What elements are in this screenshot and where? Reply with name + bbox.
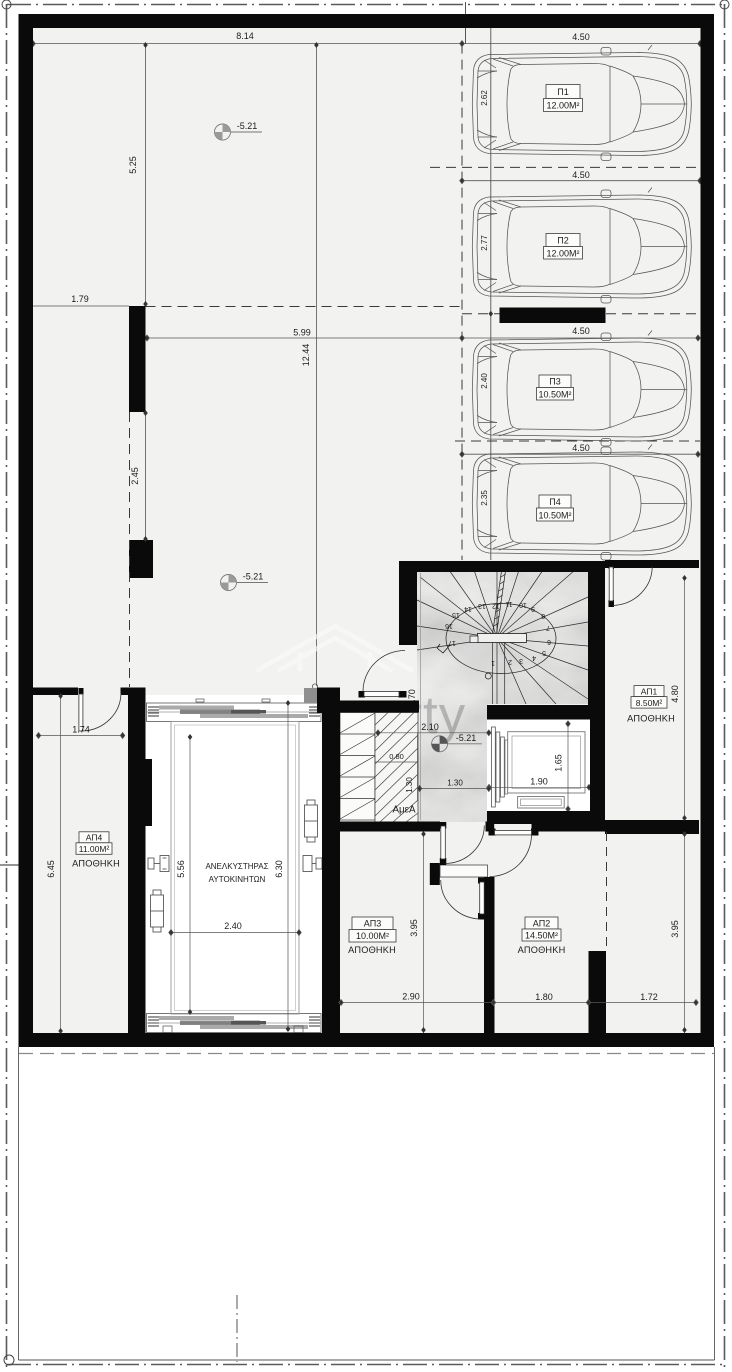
svg-text:ΑμεΑ: ΑμεΑ — [392, 805, 416, 816]
svg-text:4.50: 4.50 — [572, 32, 590, 42]
svg-text:7: 7 — [546, 624, 550, 631]
svg-text:4: 4 — [532, 654, 536, 661]
svg-text:1.90: 1.90 — [530, 777, 548, 787]
svg-text:Π2: Π2 — [557, 236, 569, 246]
svg-text:ΑΝΕΛΚΥΣΤΗΡΑΣ: ΑΝΕΛΚΥΣΤΗΡΑΣ — [205, 862, 268, 871]
svg-text:12.44: 12.44 — [301, 344, 311, 367]
svg-text:1.30: 1.30 — [447, 779, 463, 788]
svg-text:14.50Μ²: 14.50Μ² — [525, 931, 558, 941]
svg-text:4.80: 4.80 — [670, 685, 680, 703]
svg-text:6.45: 6.45 — [46, 860, 56, 878]
svg-text:16: 16 — [445, 622, 453, 629]
svg-text:ΑΠΟΘΗΚΗ: ΑΠΟΘΗΚΗ — [72, 859, 120, 869]
svg-text:4.50: 4.50 — [572, 326, 590, 336]
svg-text:0.80: 0.80 — [389, 752, 404, 761]
svg-text:2.40: 2.40 — [224, 921, 242, 931]
svg-text:Π3: Π3 — [549, 377, 561, 387]
svg-text:-5.21: -5.21 — [243, 572, 264, 582]
svg-text:3.95: 3.95 — [670, 920, 680, 938]
svg-text:2.35: 2.35 — [480, 490, 489, 506]
svg-text:11: 11 — [505, 600, 512, 607]
svg-text:6.30: 6.30 — [274, 860, 284, 878]
svg-text:1.65: 1.65 — [554, 754, 564, 772]
svg-text:14: 14 — [464, 605, 472, 612]
svg-text:2.90: 2.90 — [402, 992, 420, 1002]
svg-text:4.50: 4.50 — [572, 443, 590, 453]
svg-text:11.00Μ²: 11.00Μ² — [79, 844, 110, 854]
svg-text:8: 8 — [541, 612, 545, 619]
svg-text:5.99: 5.99 — [293, 328, 311, 338]
svg-text:2.40: 2.40 — [480, 373, 489, 389]
svg-text:2.10: 2.10 — [421, 722, 439, 732]
svg-text:15: 15 — [452, 611, 460, 618]
svg-text:2: 2 — [508, 658, 512, 665]
svg-text:12.00Μ²: 12.00Μ² — [546, 101, 579, 111]
svg-text:10.50Μ²: 10.50Μ² — [538, 511, 571, 521]
svg-text:4.50: 4.50 — [572, 170, 590, 180]
svg-text:2.62: 2.62 — [480, 90, 489, 106]
svg-text:12.00Μ²: 12.00Μ² — [546, 249, 579, 259]
svg-text:5.56: 5.56 — [176, 860, 186, 878]
svg-text:ΑΠ1: ΑΠ1 — [641, 686, 658, 696]
svg-text:1.74: 1.74 — [72, 725, 90, 735]
svg-text:10: 10 — [519, 601, 527, 608]
svg-text:2.45: 2.45 — [130, 467, 140, 485]
svg-text:6: 6 — [547, 638, 551, 645]
svg-text:Π4: Π4 — [549, 497, 561, 507]
svg-text:-5.21: -5.21 — [456, 733, 477, 743]
svg-text:2.77: 2.77 — [480, 235, 489, 251]
svg-text:1.30: 1.30 — [405, 777, 414, 793]
svg-text:5: 5 — [542, 649, 546, 656]
svg-text:ΑΠΟΘΗΚΗ: ΑΠΟΘΗΚΗ — [348, 945, 396, 955]
svg-text:ΑΠ4: ΑΠ4 — [86, 833, 103, 843]
svg-text:8.50Μ²: 8.50Μ² — [636, 698, 663, 708]
svg-text:9: 9 — [531, 605, 535, 612]
svg-text:10.00Μ²: 10.00Μ² — [356, 931, 389, 941]
svg-text:1.80: 1.80 — [535, 992, 553, 1002]
svg-text:1.72: 1.72 — [640, 992, 658, 1002]
svg-text:12: 12 — [492, 602, 500, 609]
svg-text:ΑΠ3: ΑΠ3 — [364, 919, 382, 929]
svg-text:3.95: 3.95 — [409, 919, 419, 937]
svg-text:Π1: Π1 — [557, 87, 569, 97]
svg-text:ΑΥΤΟΚΙΝΗΤΩΝ: ΑΥΤΟΚΙΝΗΤΩΝ — [209, 875, 266, 884]
svg-text:1.79: 1.79 — [71, 294, 89, 304]
svg-text:13: 13 — [478, 602, 486, 609]
svg-text:1: 1 — [491, 659, 495, 666]
svg-text:ΑΠΟΘΗΚΗ: ΑΠΟΘΗΚΗ — [627, 714, 675, 724]
svg-text:ΑΠ2: ΑΠ2 — [533, 919, 551, 929]
svg-text:10.50Μ²: 10.50Μ² — [538, 390, 571, 400]
svg-text:ΑΠΟΘΗΚΗ: ΑΠΟΘΗΚΗ — [518, 945, 566, 955]
svg-text:8.14: 8.14 — [236, 31, 254, 41]
svg-text:17: 17 — [448, 639, 456, 646]
svg-text:-5.21: -5.21 — [237, 121, 258, 131]
svg-text:5.25: 5.25 — [128, 156, 138, 174]
svg-text:3: 3 — [519, 657, 523, 664]
